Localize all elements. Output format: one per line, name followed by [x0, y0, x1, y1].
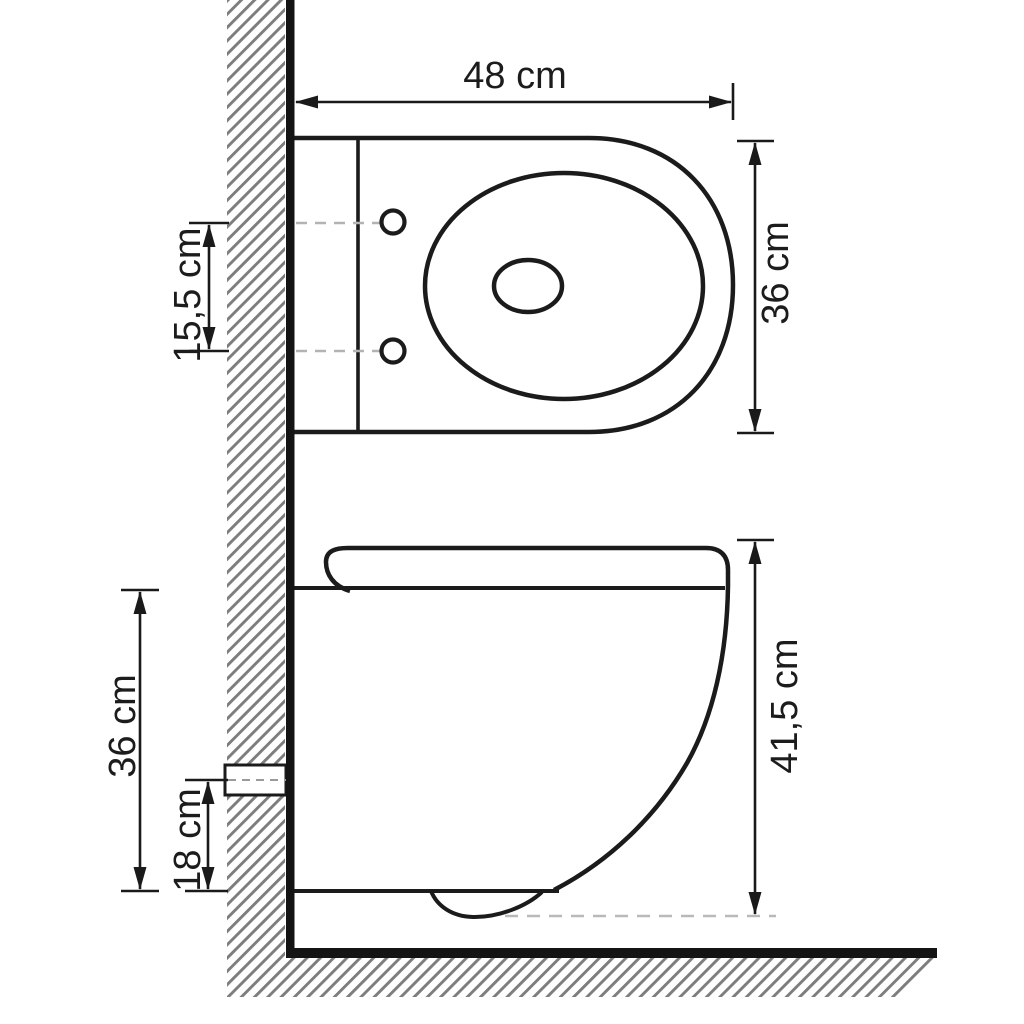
- mounting-hole-centerlines: [296, 223, 381, 351]
- floor-hatch: [285, 958, 937, 997]
- arrow-up-icon: [749, 541, 762, 564]
- arrow-down-icon: [749, 409, 762, 432]
- arrow-down-icon: [134, 867, 147, 890]
- arrow-right-icon: [709, 96, 732, 109]
- wall-and-floor-hatching: [227, 0, 937, 997]
- wall-hatch: [227, 0, 285, 997]
- mounting-hole-lower: [382, 340, 405, 363]
- dimension-label-side-height: 41,5 cm: [766, 638, 804, 773]
- top-view: [294, 138, 733, 432]
- dimension-label-side-depth: 36 cm: [104, 674, 142, 777]
- side-view: [225, 548, 776, 917]
- dimension-label-outlet-height: 18 cm: [169, 788, 207, 891]
- side-view-seat-lid: [326, 548, 728, 591]
- arrow-left-icon: [295, 96, 318, 109]
- dimension-label-top-width: 48 cm: [463, 57, 566, 95]
- floor-line: [286, 948, 937, 958]
- dimension-label-hole-spacing: 15,5 cm: [169, 227, 207, 362]
- arrow-up-icon: [134, 591, 147, 614]
- wall-face-line: [286, 0, 295, 958]
- arrow-up-icon: [749, 142, 762, 165]
- side-view-trap-bump: [431, 891, 542, 917]
- side-view-bowl-curve: [554, 586, 728, 890]
- dimension-label-top-depth: 36 cm: [757, 221, 795, 324]
- mounting-hole-upper: [382, 211, 405, 234]
- arrow-down-icon: [749, 892, 762, 915]
- diagram-canvas: 48 cm 36 cm 15,5 cm 36 cm 18 cm 41,5 cm: [0, 0, 1024, 1024]
- toilet-dimension-drawing: [0, 0, 1024, 1024]
- top-view-drain-hole: [494, 260, 562, 312]
- dimensions: [121, 83, 774, 915]
